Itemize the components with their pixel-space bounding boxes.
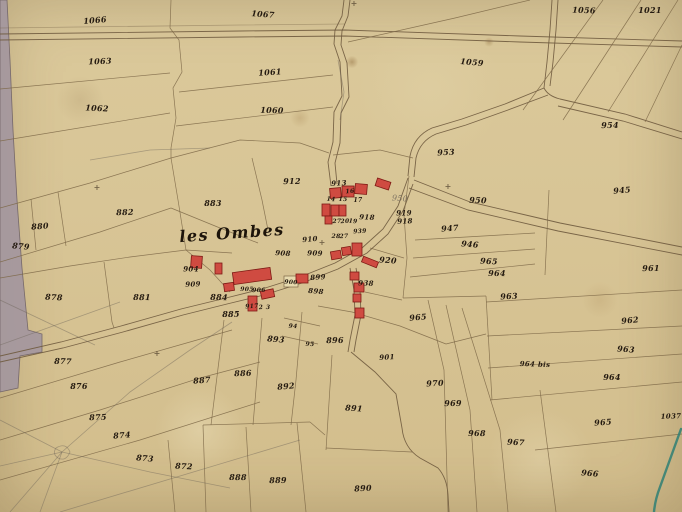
parcel-number: 1062 [85, 103, 109, 112]
parcel-number: 875 [89, 413, 107, 422]
parcel-number: 970 [426, 379, 444, 388]
parcel-number: 967 [507, 438, 525, 447]
parcel-number: 964 bis [520, 360, 551, 368]
building-footprint [353, 294, 361, 302]
parcel-number: 963 [617, 344, 635, 353]
parcel-number: 950 [392, 194, 409, 203]
parcel-number: 880 [31, 221, 49, 230]
survey-cross-mark: + [94, 184, 101, 192]
parcel-number: 95 [305, 342, 314, 348]
parcel-number: 1060 [260, 106, 284, 114]
building-footprint [331, 205, 339, 216]
parcel-number: 1059 [460, 57, 484, 67]
parcel-number: 913 [331, 179, 347, 187]
parcel-number: 965 [480, 257, 498, 266]
parcel-number: 896 [326, 336, 344, 344]
parcel-number: 904 [183, 266, 199, 273]
parcel-number: 873 [136, 453, 154, 463]
parcel-number: 877 [54, 357, 72, 366]
parcel-number: 883 [204, 199, 222, 207]
parcel-number: 966 [581, 468, 599, 478]
parcel-number: 874 [113, 430, 131, 439]
building-footprint [355, 308, 364, 318]
parcel-number: 909 [307, 249, 323, 257]
parcel-number: 3 [266, 305, 271, 311]
parcel-number: 889 [269, 476, 287, 484]
parcel-number: 887 [193, 375, 211, 384]
parcel-number: 965 [594, 417, 612, 426]
parcel-number: 945 [613, 185, 631, 195]
parcel-number: 920 [379, 255, 397, 264]
parcel-number: 884 [210, 293, 228, 302]
survey-cross-mark: + [154, 350, 161, 358]
parcel-number: 963 [500, 292, 518, 301]
map-linework [0, 0, 682, 512]
parcel-number: 962 [621, 315, 639, 325]
parcel-number: 918 [397, 217, 413, 225]
stream-line [654, 429, 681, 512]
parcel-number: 1037 [661, 412, 682, 420]
building-footprint [325, 216, 332, 224]
parcel-number: 1063 [88, 57, 112, 66]
building-footprint [223, 282, 234, 291]
parcel-number: 14 [326, 197, 335, 204]
parcel-number: 899 [310, 273, 326, 281]
parcel-number: 886 [234, 369, 252, 378]
parcel-number: 961 [642, 264, 660, 272]
parcel-number: 27 [339, 234, 348, 240]
parcel-number: 968 [468, 429, 486, 437]
building-footprint [355, 183, 368, 194]
parcel-number: 15 [338, 197, 347, 203]
parcel-number: 16 [345, 189, 354, 196]
parcel-number: 2 [259, 305, 264, 311]
building-footprint [352, 243, 362, 256]
parcel-number: 1061 [258, 67, 282, 77]
parcel-number: 950 [469, 196, 487, 205]
parcel-number: 872 [175, 462, 193, 471]
cadastral-map: les Ombes 106610671056102110631061105910… [0, 0, 682, 512]
parcel-number: 964 [603, 373, 621, 381]
parcel-number: 965 [409, 312, 427, 322]
survey-cross-mark: + [319, 239, 326, 247]
parcel-number: 879 [12, 241, 30, 251]
parcel-number: 888 [229, 473, 247, 481]
parcel-number: 909 [185, 280, 201, 288]
building-footprint [215, 263, 222, 274]
parcel-number: 947 [441, 223, 459, 232]
survey-cross-mark: + [351, 0, 358, 8]
parcel-number: 908 [275, 249, 291, 257]
parcel-number: 912 [283, 177, 301, 185]
parcel-number: 876 [70, 382, 88, 390]
parcel-number: 882 [116, 208, 134, 217]
building-footprint [361, 256, 378, 268]
parcel-number: 954 [601, 121, 619, 129]
building-footprint [330, 250, 341, 260]
parcel-number: 1067 [251, 9, 275, 19]
parcel-number: 19 [348, 219, 357, 226]
parcel-number: 885 [222, 310, 240, 318]
parcel-number: 892 [277, 381, 295, 391]
building-footprint [322, 204, 330, 216]
parcel-number: 1056 [572, 6, 596, 15]
building-footprint [375, 178, 391, 190]
parcel-number: 893 [267, 334, 285, 344]
parcel-number: 900 [284, 280, 298, 287]
parcel-number: 918 [359, 213, 375, 221]
parcel-number: 946 [461, 239, 479, 249]
parcel-number: 917 [245, 304, 259, 311]
parcel-number: 890 [354, 484, 372, 493]
parcel-number: 1066 [83, 15, 107, 25]
building-footprint [232, 267, 271, 284]
parcel-number: 906 [252, 288, 266, 294]
parcel-number: 878 [45, 293, 63, 302]
parcel-number: 891 [345, 403, 363, 412]
gray-road-strip [0, 0, 42, 392]
parcel-number: 939 [353, 229, 367, 236]
building-footprint [339, 205, 346, 216]
parcel-number: 17 [354, 198, 363, 204]
parcel-number: 901 [379, 353, 395, 361]
survey-cross-mark: + [445, 183, 452, 191]
parcel-number: 94 [288, 324, 297, 330]
building-footprint [341, 246, 351, 255]
parcel-number: 953 [437, 148, 455, 157]
parcel-number: 969 [444, 399, 462, 407]
parcel-number: 964 [488, 269, 506, 277]
parcel-number: 938 [358, 279, 374, 287]
parcel-number: 1021 [638, 6, 661, 14]
parcel-number: 910 [302, 235, 318, 243]
parcel-number: 881 [133, 293, 151, 301]
parcel-number: 898 [308, 287, 324, 295]
